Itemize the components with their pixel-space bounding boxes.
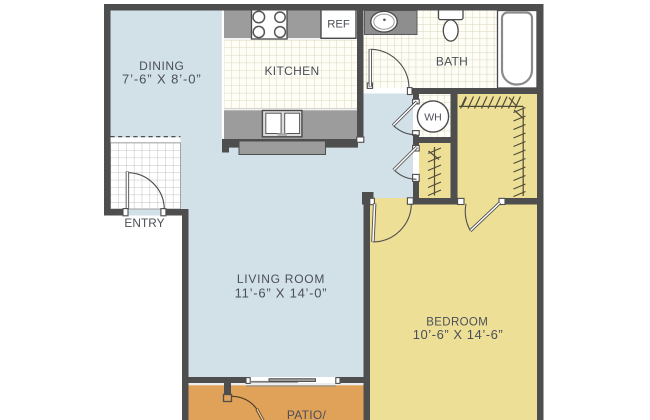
svg-text:11’-6” X 14’-0”: 11’-6” X 14’-0” <box>235 286 328 301</box>
svg-text:REF: REF <box>327 18 350 30</box>
svg-text:7’-6” X 8’-0”: 7’-6” X 8’-0” <box>122 72 202 87</box>
svg-text:KITCHEN: KITCHEN <box>264 64 319 78</box>
svg-text:WH: WH <box>424 112 442 124</box>
svg-text:PATIO/: PATIO/ <box>287 408 327 420</box>
svg-text:LIVING ROOM: LIVING ROOM <box>237 272 325 286</box>
svg-text:BATH: BATH <box>436 55 468 69</box>
svg-text:10’-6” X 14’-6”: 10’-6” X 14’-6” <box>413 327 504 342</box>
svg-text:ENTRY: ENTRY <box>124 216 164 230</box>
